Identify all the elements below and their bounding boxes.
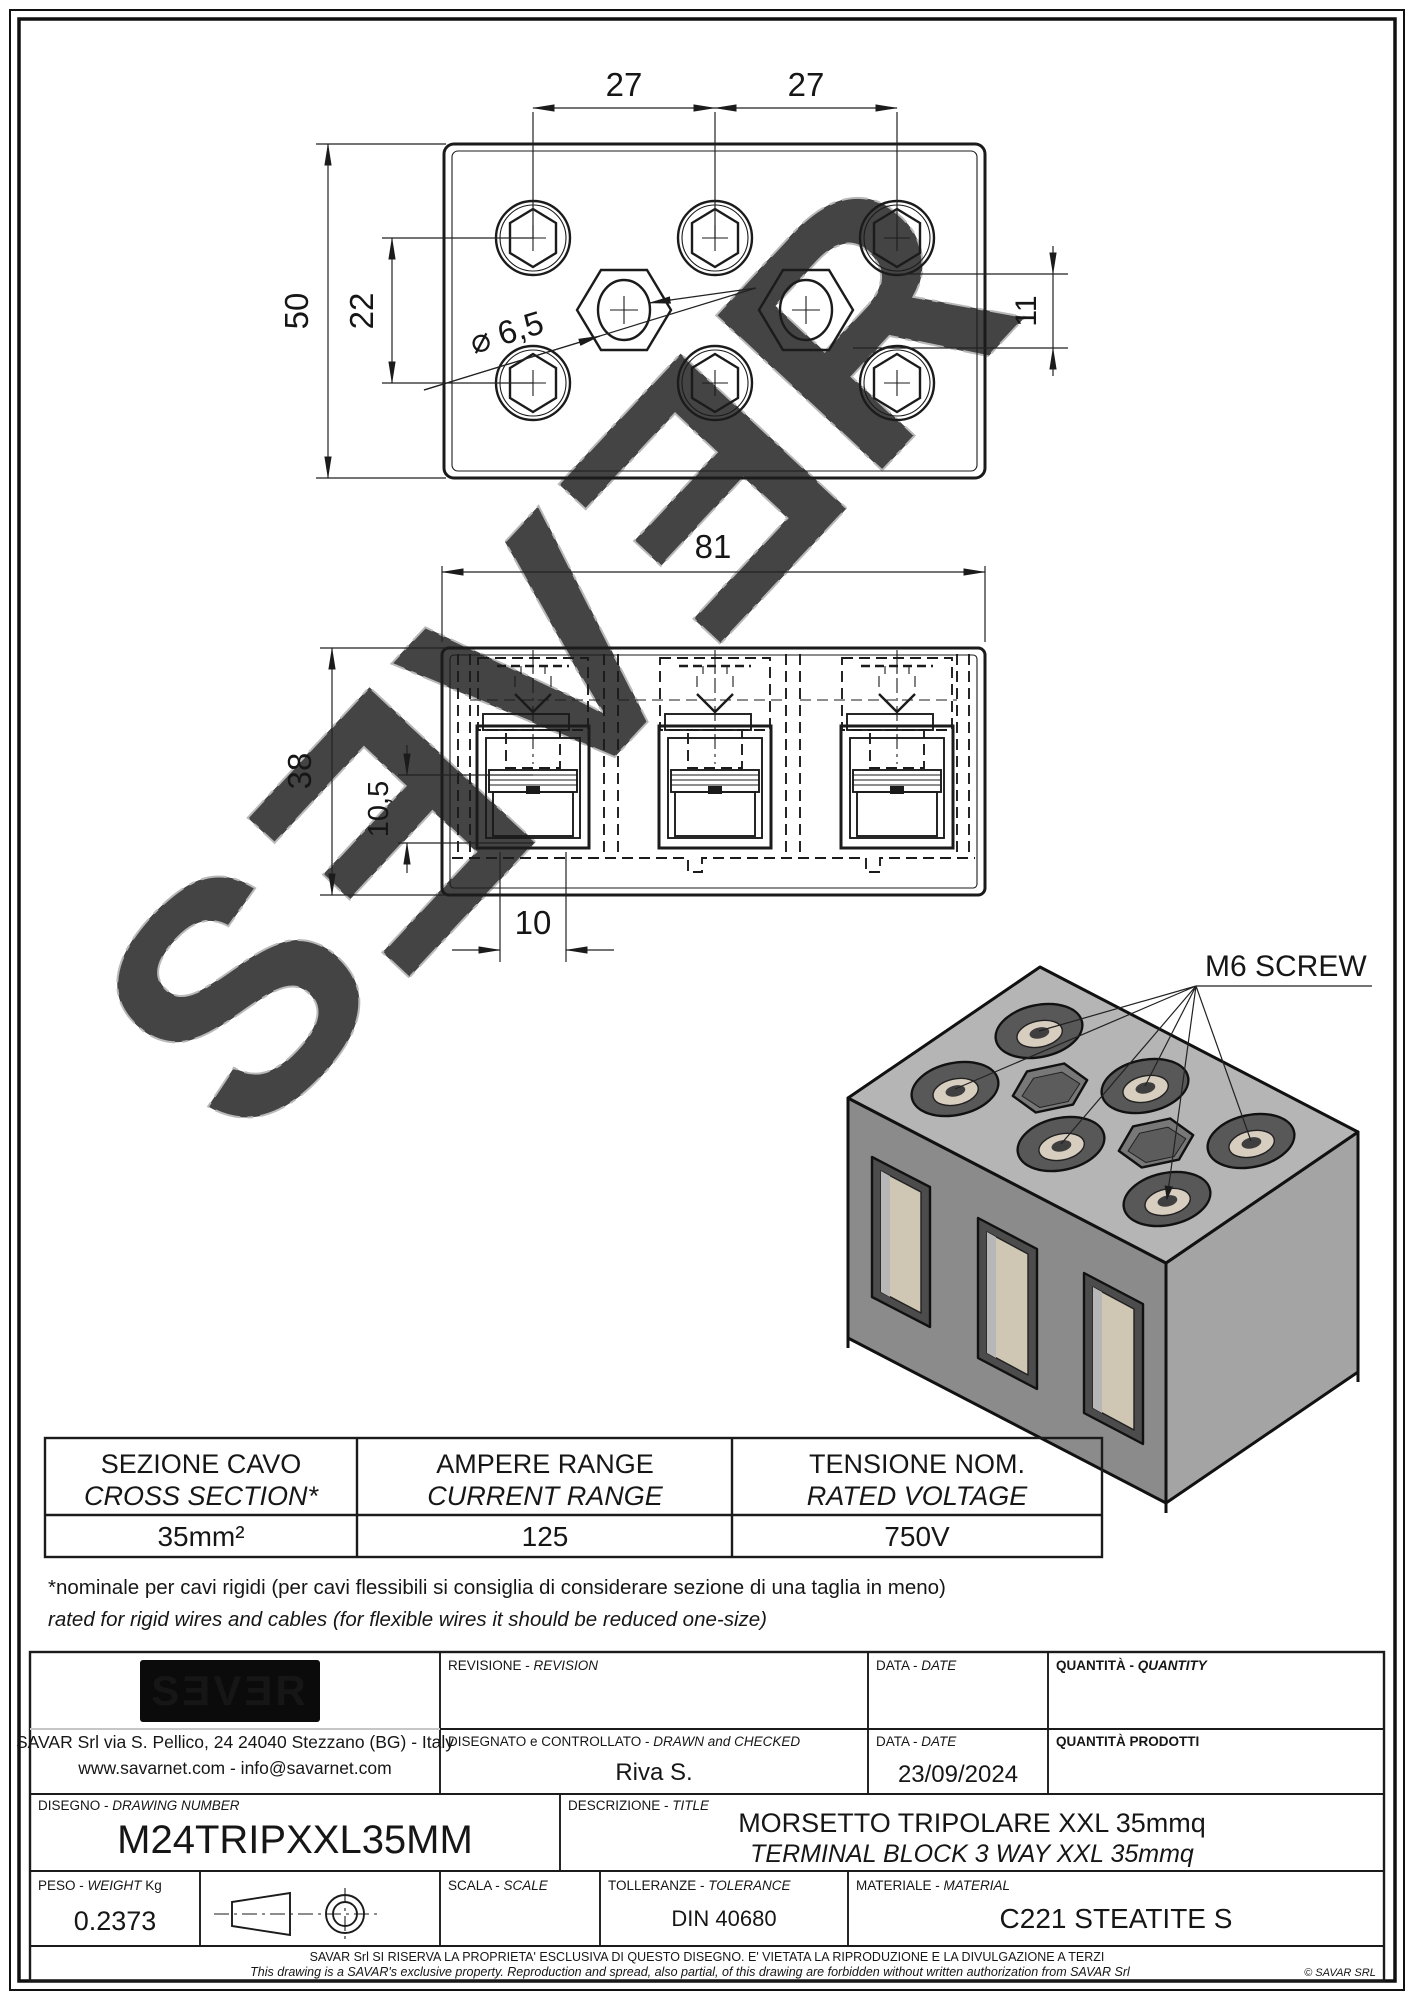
spec-col1-value: 35mm² (157, 1521, 244, 1552)
drawing-sheet: SƎVƎR 27 27 50 22 (0, 0, 1414, 2000)
projection-symbol (214, 1888, 382, 1940)
company-cell: SƎVƎR SAVAR Srl via S. Pellico, 24 24040… (16, 1660, 454, 1778)
company-address: SAVAR Srl via S. Pellico, 24 24040 Stezz… (16, 1732, 454, 1752)
dim-10-5-label: 10,5 (363, 781, 395, 837)
note-english: rated for rigid wires and cables (for fl… (48, 1608, 767, 1631)
footer-copyright: © SAVAR SRL (1304, 1967, 1376, 1979)
title-italian: MORSETTO TRIPOLARE XXL 35mmq (738, 1808, 1206, 1838)
dim-22-label: 22 (343, 293, 380, 330)
date-label-top: DATA - DATE (876, 1658, 957, 1673)
dim-38-label: 38 (281, 753, 318, 790)
notes: *nominale per cavi rigidi (per cavi fles… (48, 1576, 946, 1631)
footer-english: This drawing is a SAVAR's exclusive prop… (250, 1965, 1131, 1979)
spec-col2-value: 125 (522, 1521, 569, 1552)
dim-27-left: 27 (606, 66, 643, 103)
material-label: MATERIALE - MATERIAL (856, 1878, 1010, 1893)
drawn-value: Riva S. (615, 1759, 692, 1786)
scale-label: SCALA - SCALE (448, 1878, 549, 1893)
spec-col3-title: TENSIONE NOM. (809, 1449, 1025, 1479)
spec-col1-title: SEZIONE CAVO (101, 1449, 302, 1479)
revision-label: REVISIONE - REVISION (448, 1658, 598, 1673)
quantity-label: QUANTITÀ - QUANTITY (1056, 1658, 1209, 1673)
company-web: www.savarnet.com - info@savarnet.com (77, 1758, 391, 1778)
dim-11-label: 11 (1010, 295, 1043, 326)
title-english: TERMINAL BLOCK 3 WAY XXL 35mmq (750, 1840, 1194, 1868)
spec-col3-value: 750V (884, 1521, 950, 1552)
spec-col3-subtitle: RATED VOLTAGE (807, 1481, 1029, 1511)
drawn-label: DISEGNATO e CONTROLLATO - DRAWN and CHEC… (448, 1734, 800, 1749)
spec-col1-subtitle: CROSS SECTION* (84, 1481, 320, 1511)
tolerance-value: DIN 40680 (671, 1906, 776, 1931)
description-label: DESCRIZIONE - TITLE (568, 1798, 710, 1813)
dim-10-label: 10 (515, 904, 552, 941)
drawing-number: M24TRIPXXL35MM (117, 1818, 473, 1862)
footer-italian: SAVAR Srl SI RISERVA LA PROPRIETA' ESCLU… (310, 1950, 1105, 1964)
dim-27-right: 27 (788, 66, 825, 103)
date-value: 23/09/2024 (898, 1761, 1018, 1788)
title-block: SƎVƎR SAVAR Srl via S. Pellico, 24 24040… (16, 1652, 1384, 1981)
dim-50-label: 50 (278, 293, 315, 330)
material-value: C221 STEATITE S (1000, 1903, 1233, 1934)
weight-value: 0.2373 (74, 1906, 157, 1936)
dim-diameter-label: ⌀ 6,5 (465, 303, 547, 360)
drawing-number-label: DISEGNO - DRAWING NUMBER (38, 1798, 240, 1813)
quantity-prod-label: QUANTITÀ PRODOTTI (1056, 1734, 1199, 1749)
iso-view: M6 SCREW (848, 950, 1372, 1513)
dim-81-label: 81 (695, 528, 732, 565)
tolerance-label: TOLLERANZE - TOLERANCE (608, 1878, 792, 1893)
drawing-canvas: SƎVƎR 27 27 50 22 (0, 0, 1414, 2000)
savar-logo-text: SƎVƎR (151, 1667, 308, 1714)
m6-screw-label: M6 SCREW (1205, 950, 1367, 983)
note-italian: *nominale per cavi rigidi (per cavi fles… (48, 1576, 946, 1599)
weight-label: PESO - WEIGHT Kg (38, 1878, 162, 1893)
spec-table: SEZIONE CAVO CROSS SECTION* 35mm² AMPERE… (45, 1438, 1102, 1557)
date-label: DATA - DATE (876, 1734, 957, 1749)
spec-col2-subtitle: CURRENT RANGE (427, 1481, 664, 1511)
spec-col2-title: AMPERE RANGE (436, 1449, 654, 1479)
